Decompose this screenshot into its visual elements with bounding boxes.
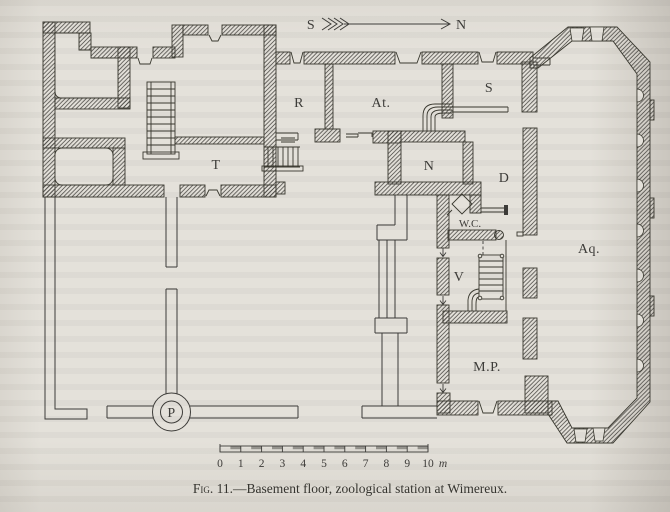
scale-tick-10: 10 bbox=[422, 458, 434, 470]
scale-unit-label: m bbox=[439, 458, 447, 470]
scale-tick-6: 6 bbox=[342, 458, 348, 470]
room-label-v: V bbox=[454, 270, 465, 285]
north-wing-walls bbox=[276, 52, 533, 195]
aquarium-wall-voussoirs bbox=[570, 27, 605, 442]
figure-caption: Fig. 11.—Basement floor, zoological stat… bbox=[193, 481, 507, 496]
room-label-d: D bbox=[499, 171, 510, 186]
compass: S N bbox=[307, 18, 467, 33]
room-label-wc: W.C. bbox=[459, 218, 481, 230]
figure-caption-number: Fig. 11. bbox=[193, 481, 233, 496]
room-label-p: P bbox=[167, 406, 175, 421]
t-building-door-reveals bbox=[138, 35, 221, 196]
scale-tick-0: 0 bbox=[217, 458, 223, 470]
room-label-aq: Aq. bbox=[578, 242, 600, 257]
garden-paths bbox=[45, 197, 437, 419]
book-page: P T R At. S N D W.C. Aq. V M.P. S bbox=[0, 0, 670, 512]
scale-bar-shading bbox=[230, 446, 428, 449]
garden-stair bbox=[375, 195, 407, 406]
v-staircase bbox=[468, 240, 506, 311]
scale-tick-2: 2 bbox=[259, 458, 265, 470]
scale-bar-numbers: 0 1 2 3 4 5 6 7 8 9 10 m bbox=[217, 458, 447, 470]
floor-plan-figure: P T R At. S N D W.C. Aq. V M.P. S bbox=[0, 0, 670, 512]
room-label-t: T bbox=[211, 158, 220, 173]
scale-tick-8: 8 bbox=[384, 458, 390, 470]
central-staircase bbox=[143, 82, 179, 159]
scale-tick-1: 1 bbox=[238, 458, 244, 470]
compass-north-label: N bbox=[456, 18, 467, 33]
room-label-mp: M.P. bbox=[473, 360, 501, 375]
scale-tick-7: 7 bbox=[363, 458, 369, 470]
wc-wall-end-cap bbox=[504, 205, 508, 215]
compass-south-label: S bbox=[307, 18, 315, 33]
scale-tick-5: 5 bbox=[321, 458, 327, 470]
mp-door-reveal bbox=[479, 401, 497, 413]
room-label-n: N bbox=[424, 159, 435, 174]
room-label-r: R bbox=[294, 96, 304, 111]
fountain-circle: P bbox=[153, 393, 191, 431]
terrace-stair bbox=[262, 58, 550, 171]
scale-tick-3: 3 bbox=[280, 458, 286, 470]
room-label-at: At. bbox=[372, 96, 391, 111]
compass-arrow-icon bbox=[322, 18, 450, 30]
wc-wall-round-end bbox=[495, 231, 504, 240]
scale-tick-9: 9 bbox=[404, 458, 410, 470]
scale-bar: 0 1 2 3 4 5 6 7 8 9 10 m bbox=[217, 444, 447, 470]
scale-tick-4: 4 bbox=[300, 458, 306, 470]
room-label-s: S bbox=[485, 81, 493, 96]
figure-caption-text: —Basement floor, zoological station at W… bbox=[232, 481, 507, 496]
aquarium-west-walls bbox=[522, 62, 654, 413]
